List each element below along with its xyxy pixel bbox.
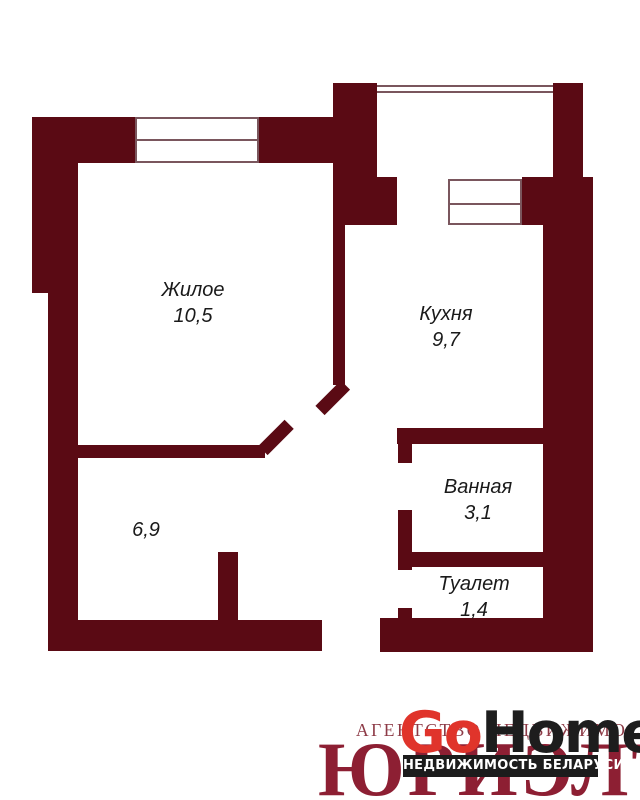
room-area: 6,9 [66, 517, 226, 543]
room-label-hallway: 6,9 [66, 517, 226, 543]
wall-living-kitchen [333, 225, 345, 385]
wall-left-lower [48, 293, 78, 651]
room-name: Жилое [113, 277, 273, 303]
wall-bottom-left [48, 620, 322, 651]
gohome-logo: GoHome [399, 705, 640, 762]
logo-tagline-bar: НЕДВИЖИМОСТЬ БЕЛАРУСИ [403, 755, 598, 777]
wall-top-left [32, 117, 135, 163]
kitchen-window [448, 179, 522, 225]
room-area: 10,5 [113, 303, 273, 329]
room-label-bathroom: Ванная 3,1 [398, 474, 558, 526]
wall-window-jamb-right [522, 177, 593, 225]
room-label-toilet: Туалет 1,4 [394, 571, 554, 623]
room-name: Ванная [398, 474, 558, 500]
room-area: 1,4 [394, 597, 554, 623]
living-room-window [135, 117, 259, 163]
wall-bathroom-left-a [398, 444, 412, 463]
room-name: Туалет [394, 571, 554, 597]
wall-balcony-right [553, 83, 583, 177]
floorplan-canvas: Жилое 10,5 Кухня 9,7 Ванная 3,1 Туалет 1… [0, 0, 640, 800]
door-leaf-living [258, 420, 293, 455]
window-mullion [137, 139, 257, 141]
wall-balconydoor-jamb [333, 177, 397, 225]
room-label-living: Жилое 10,5 [113, 277, 273, 329]
room-name: Кухня [366, 301, 526, 327]
balcony-glazing [377, 85, 553, 93]
wall-bathroom-top [397, 428, 543, 444]
wall-bath-toilet-divider [412, 552, 543, 567]
wall-bottom-right [380, 618, 593, 652]
door-leaf-kitchen [315, 380, 350, 415]
wall-hall-stub [218, 552, 238, 620]
room-area: 9,7 [366, 327, 526, 353]
window-mullion [450, 203, 520, 205]
room-area: 3,1 [398, 500, 558, 526]
wall-living-hall [78, 445, 265, 458]
room-label-kitchen: Кухня 9,7 [366, 301, 526, 353]
wall-balcony-left [333, 83, 377, 177]
